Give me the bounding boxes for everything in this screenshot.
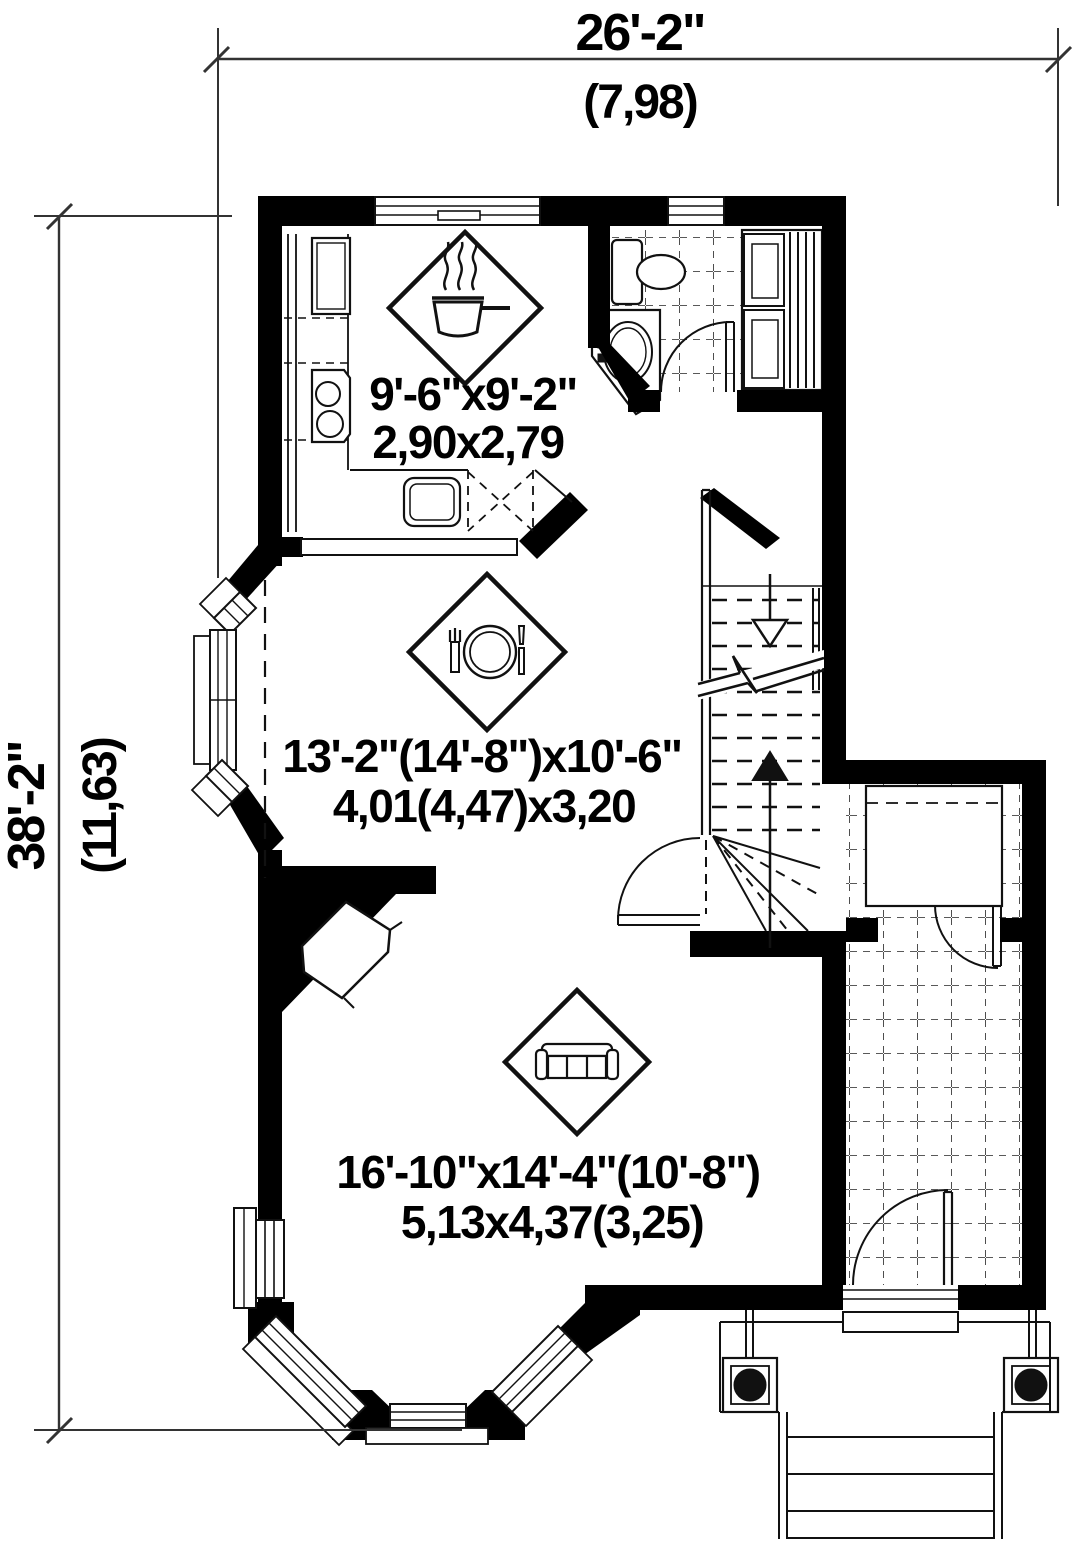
dimension-top-feet: 26'-2" — [575, 4, 704, 62]
living-west-wall — [258, 850, 282, 1220]
kitchen-bath-wall — [588, 226, 610, 348]
bathroom-window — [668, 197, 724, 225]
stair-beam — [700, 488, 780, 549]
kitchen-size-meters: 2,90x2,79 — [372, 416, 563, 468]
floor-plan-drawing: 26'-2" (7,98) 38'-2" (11,63) 9'-6"x9'-2"… — [0, 0, 1080, 1541]
stair-winders — [713, 836, 821, 931]
dimension-left-feet: 38'-2" — [0, 741, 56, 870]
stair-down-arrow — [753, 574, 787, 646]
sofa-icon — [536, 1044, 618, 1079]
stair-hall-door — [618, 838, 706, 925]
kitchen-window — [375, 197, 540, 225]
stair-rail — [702, 490, 710, 835]
dimension-top-meters: (7,98) — [583, 76, 696, 129]
staircase — [618, 490, 824, 948]
north-wall — [258, 196, 846, 226]
living-size-meters: 5,13x4,37(3,25) — [401, 1196, 703, 1248]
east-wall — [822, 200, 846, 784]
living-size-feet: 16'-10"x14'-4"(10'-8") — [336, 1146, 759, 1198]
door-threshold — [843, 1290, 958, 1299]
corner-cabinet — [468, 472, 533, 531]
porch — [720, 1310, 1058, 1539]
entry-stoop — [843, 1312, 958, 1332]
column-icon — [734, 1369, 766, 1401]
vestibule-stub-left — [846, 918, 878, 942]
kitchen-angled-wall — [519, 492, 588, 559]
dining-symbol-diamond — [409, 574, 565, 730]
stair-break-line — [698, 650, 824, 700]
refrigerator — [312, 238, 350, 314]
vestibule-stub-right — [1000, 918, 1022, 942]
stair-stringer — [813, 588, 819, 690]
porch-column — [723, 1358, 777, 1412]
bay-glass-center — [390, 1404, 466, 1428]
bay-sill — [194, 636, 210, 764]
porch-steps — [779, 1412, 1002, 1539]
south-wall-right — [958, 1285, 1046, 1310]
stair-hall-wall — [690, 931, 846, 957]
vestibule-north-wall — [846, 760, 1046, 784]
vestibule-east-wall — [1022, 760, 1046, 1310]
dimension-left-meters: (11,63) — [74, 738, 127, 873]
living-vestibule-wall — [822, 931, 846, 1285]
porch-column — [1004, 1358, 1058, 1412]
living-west-window — [234, 1208, 284, 1308]
toilet-icon — [637, 255, 685, 289]
kitchen-size-feet: 9'-6"x9'-2" — [369, 368, 577, 420]
front-bay-window — [243, 1316, 592, 1445]
shower-stall — [742, 230, 822, 390]
dining-size-meters: 4,01(4,47)x3,20 — [333, 780, 635, 832]
bath-south-wall-right — [737, 390, 846, 412]
column-icon — [1015, 1369, 1047, 1401]
bath-south-wall-left — [628, 390, 660, 412]
dining-size-feet: 13'-2"(14'-8")x10'-6" — [282, 730, 681, 782]
floor-plan-canvas: 26'-2" (7,98) 38'-2" (11,63) 9'-6"x9'-2"… — [0, 0, 1080, 1541]
kitchen-west-wall — [258, 196, 282, 566]
pass-through-counter — [301, 539, 517, 555]
